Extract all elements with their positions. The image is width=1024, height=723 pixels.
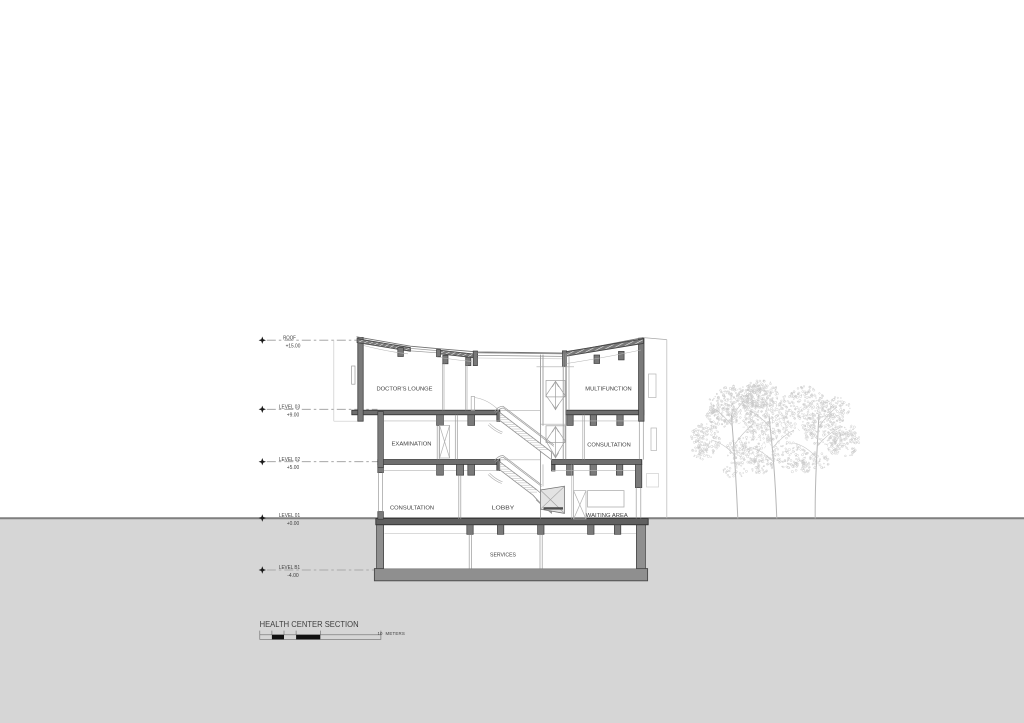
svg-text:MULTIFUNCTION: MULTIFUNCTION <box>585 387 631 393</box>
svg-text:10: 10 <box>378 631 383 636</box>
svg-text:HEALTH CENTER SECTION: HEALTH CENTER SECTION <box>260 619 359 629</box>
svg-text:+9.00: +9.00 <box>287 412 299 418</box>
svg-text:EXAMINATION: EXAMINATION <box>392 442 432 448</box>
svg-text:CONSULTATION: CONSULTATION <box>390 506 434 512</box>
svg-text:+5.00: +5.00 <box>287 465 299 471</box>
svg-text:SERVICES: SERVICES <box>490 553 516 559</box>
svg-text:+0.00: +0.00 <box>287 521 299 527</box>
svg-text:LEVEL 01: LEVEL 01 <box>279 513 300 519</box>
svg-text:LOBBY: LOBBY <box>492 506 515 512</box>
svg-text:CONSULTATION: CONSULTATION <box>587 443 631 449</box>
svg-text:WAITING AREA: WAITING AREA <box>586 513 628 519</box>
svg-text:+15.00: +15.00 <box>286 343 301 349</box>
svg-text:METERS: METERS <box>386 631 406 636</box>
svg-text:-4.00: -4.00 <box>287 573 299 579</box>
svg-text:DOCTOR'S LOUNGE: DOCTOR'S LOUNGE <box>377 387 433 393</box>
